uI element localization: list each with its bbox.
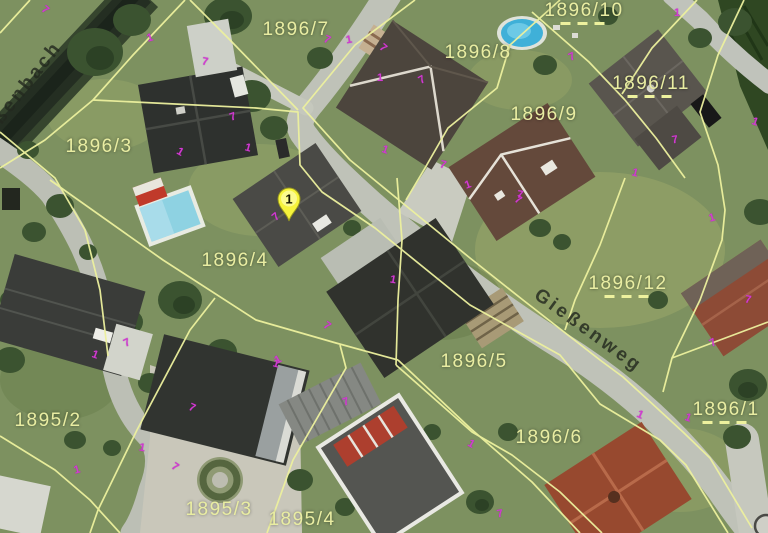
- survey-point-marker: 7: [496, 508, 504, 521]
- survey-point-marker: 1: [380, 143, 390, 156]
- parcel-label: 1895/4: [268, 509, 335, 531]
- parcel-label-dashes: [703, 421, 750, 424]
- survey-point-marker: 1: [465, 437, 476, 450]
- survey-point-marker: 1: [707, 211, 716, 224]
- parcel-label: 1896/3: [65, 136, 132, 158]
- survey-point-marker: 1: [463, 178, 473, 191]
- parcel-label: 1896/1: [692, 399, 759, 421]
- survey-point-marker: 7: [707, 336, 718, 349]
- survey-point-marker: 1: [72, 463, 81, 476]
- survey-point-marker: 1: [635, 408, 646, 421]
- survey-point-marker: 1: [345, 34, 353, 47]
- parcel-label: 1896/6: [515, 427, 582, 449]
- map-label-overlay: 1896/71896/81896/101896/111896/91896/318…: [0, 0, 768, 533]
- parcel-label-dashes: [605, 295, 652, 298]
- map-marker-pin[interactable]: 1: [274, 186, 304, 222]
- survey-point-marker: 7: [341, 395, 351, 408]
- survey-point-marker: 1: [243, 141, 252, 154]
- survey-point-marker: 7: [39, 3, 51, 16]
- parcel-label: 1895/3: [185, 499, 252, 521]
- survey-point-marker: 1: [138, 442, 146, 455]
- parcel-label: 1896/5: [440, 351, 507, 373]
- survey-point-marker: 7: [321, 319, 333, 332]
- pin-number: 1: [285, 192, 292, 207]
- survey-point-marker: 7: [187, 401, 198, 414]
- survey-point-marker: 1: [683, 411, 693, 424]
- parcel-label: 1896/7: [262, 19, 329, 41]
- survey-point-marker: 1: [377, 72, 383, 84]
- survey-point-marker: 7: [377, 41, 389, 54]
- street-label: ßenbach: [0, 37, 67, 129]
- survey-point-marker: 7: [567, 50, 578, 63]
- parcel-label: 1896/4: [201, 250, 268, 272]
- survey-point-marker: 7: [416, 73, 427, 86]
- survey-point-marker: 7: [744, 294, 752, 307]
- survey-point-marker: 1: [389, 274, 397, 287]
- parcel-label: 1896/9: [510, 104, 577, 126]
- survey-point-marker: 7: [201, 56, 209, 69]
- parcel-label-dashes: [628, 95, 675, 98]
- survey-point-marker: 7: [438, 158, 447, 171]
- survey-point-marker: 1: [630, 166, 639, 179]
- survey-point-marker: 7: [122, 336, 133, 349]
- survey-point-marker: 1: [145, 31, 154, 44]
- parcel-label: 1896/11: [612, 73, 690, 95]
- parcel-label-dashes: [561, 22, 608, 25]
- survey-point-marker: 1: [750, 115, 760, 128]
- survey-point-marker: 7: [671, 134, 679, 147]
- parcel-label: 1895/2: [14, 410, 81, 432]
- street-label: Gießenweg: [530, 284, 647, 377]
- survey-point-marker: 1: [174, 145, 185, 158]
- parcel-label: 1896/10: [544, 0, 623, 22]
- aerial-map[interactable]: 1896/71896/81896/101896/111896/91896/318…: [0, 0, 768, 533]
- survey-point-marker: 1: [674, 7, 680, 19]
- parcel-label: 1896/12: [588, 273, 667, 295]
- survey-point-marker: 7: [516, 189, 524, 202]
- parcel-label: 1896/8: [444, 42, 511, 64]
- survey-point-marker: 1: [90, 348, 100, 361]
- survey-point-marker: 7: [169, 460, 181, 473]
- survey-point-marker: 7: [228, 110, 238, 123]
